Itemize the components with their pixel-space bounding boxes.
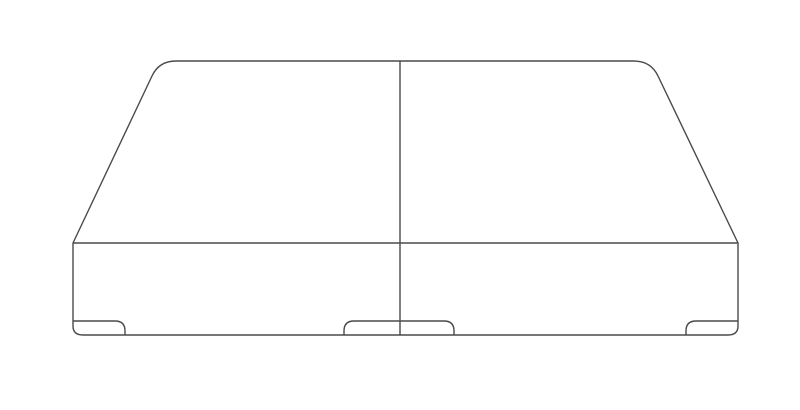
center-feet-outline (344, 321, 454, 335)
right-corner-foot-outline (686, 321, 738, 335)
foundation-outline (73, 61, 738, 335)
box-spring-diagram (0, 0, 800, 410)
illustration-canvas (0, 0, 800, 410)
left-corner-foot-outline (73, 321, 125, 335)
